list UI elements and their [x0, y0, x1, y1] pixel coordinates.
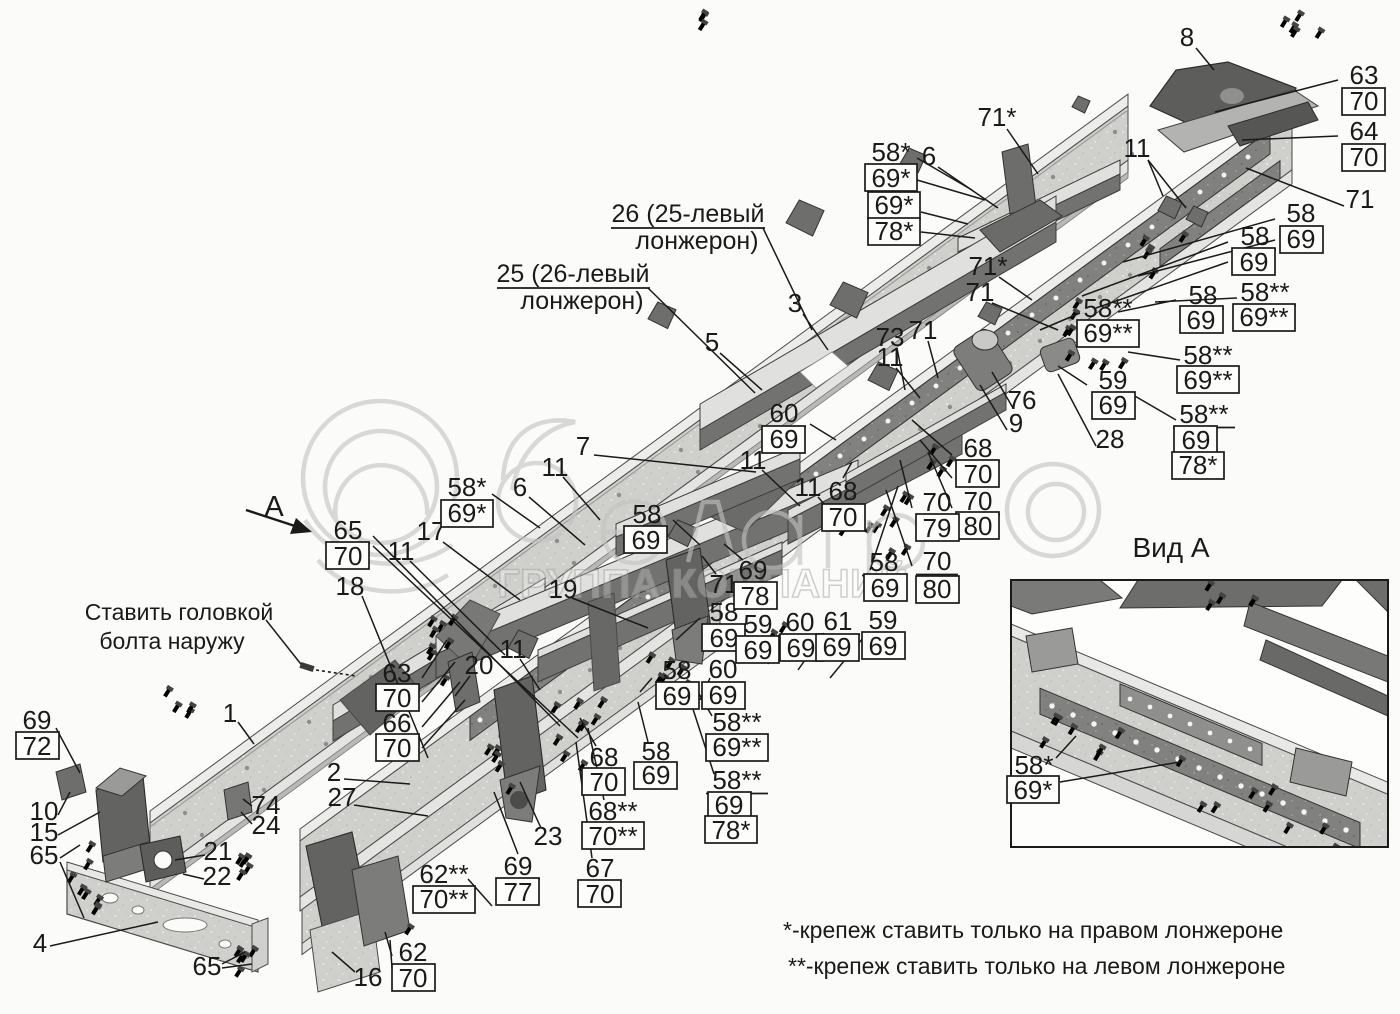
- svg-text:69: 69: [823, 632, 852, 662]
- svg-text:11: 11: [1124, 133, 1151, 163]
- svg-text:65: 65: [30, 840, 59, 870]
- svg-text:*-крепеж ставить только на пра: *-крепеж ставить только на правом лонжер…: [783, 917, 1283, 943]
- svg-text:6: 6: [513, 472, 527, 502]
- svg-text:24: 24: [252, 810, 281, 840]
- svg-text:71: 71: [1346, 184, 1375, 214]
- svg-text:69*: 69*: [871, 163, 910, 193]
- svg-text:болта наружу: болта наружу: [99, 628, 245, 654]
- svg-text:69: 69: [1287, 224, 1316, 254]
- svg-text:70**: 70**: [588, 821, 637, 851]
- svg-text:9: 9: [1009, 408, 1023, 438]
- svg-text:18: 18: [336, 571, 365, 601]
- svg-text:1: 1: [223, 698, 237, 728]
- svg-text:**-крепеж ставить только на ле: **-крепеж ставить только на левом лонжер…: [788, 953, 1285, 979]
- svg-text:69: 69: [1240, 247, 1269, 277]
- svg-text:70: 70: [383, 733, 412, 763]
- svg-text:11: 11: [795, 472, 822, 502]
- svg-text:22: 22: [203, 861, 232, 891]
- svg-text:16: 16: [354, 962, 383, 992]
- svg-text:80: 80: [923, 574, 952, 604]
- svg-text:70: 70: [964, 459, 993, 489]
- svg-text:79: 79: [923, 513, 952, 543]
- svg-text:69: 69: [869, 631, 898, 661]
- svg-text:70: 70: [829, 502, 858, 532]
- svg-text:69: 69: [1099, 390, 1128, 420]
- svg-text:78*: 78*: [874, 216, 913, 246]
- svg-text:78*: 78*: [1178, 450, 1217, 480]
- svg-text:69: 69: [871, 573, 900, 603]
- svg-text:69*: 69*: [447, 498, 486, 528]
- svg-text:70: 70: [586, 879, 615, 909]
- svg-text:69: 69: [710, 623, 739, 653]
- svg-text:3: 3: [788, 288, 802, 318]
- svg-text:27: 27: [328, 782, 357, 812]
- svg-text:69**: 69**: [1083, 318, 1132, 348]
- svg-text:11: 11: [542, 452, 569, 482]
- svg-text:69: 69: [632, 525, 661, 555]
- svg-text:65: 65: [193, 951, 222, 981]
- svg-text:Ставить головкой: Ставить головкой: [85, 599, 273, 625]
- svg-text:7: 7: [576, 431, 590, 461]
- svg-text:69*: 69*: [1013, 775, 1052, 805]
- svg-text:11: 11: [877, 342, 904, 372]
- svg-text:11: 11: [500, 634, 527, 664]
- svg-text:69: 69: [663, 681, 692, 711]
- svg-text:лонжерон): лонжерон): [520, 287, 643, 315]
- svg-text:25 (26-левый: 25 (26-левый: [497, 260, 650, 288]
- svg-text:78*: 78*: [711, 815, 750, 845]
- svg-text:69: 69: [787, 633, 816, 663]
- svg-text:11: 11: [740, 445, 767, 475]
- svg-text:70: 70: [1350, 86, 1379, 116]
- svg-text:70: 70: [923, 546, 952, 576]
- svg-text:11: 11: [388, 536, 415, 566]
- svg-text:20: 20: [465, 650, 494, 680]
- svg-text:26 (25-левый: 26 (25-левый: [612, 200, 765, 228]
- svg-text:70: 70: [590, 767, 619, 797]
- svg-text:70: 70: [334, 541, 363, 571]
- svg-text:69**: 69**: [1239, 302, 1288, 332]
- svg-text:28: 28: [1096, 424, 1125, 454]
- svg-text:69**: 69**: [712, 732, 761, 762]
- svg-text:71: 71: [966, 277, 995, 307]
- svg-text:77: 77: [504, 877, 533, 907]
- svg-text:80: 80: [964, 511, 993, 541]
- svg-text:Вид А: Вид А: [1132, 532, 1209, 563]
- svg-text:8: 8: [1180, 22, 1194, 52]
- svg-text:70: 70: [1350, 142, 1379, 172]
- svg-text:70**: 70**: [419, 884, 468, 914]
- svg-text:4: 4: [33, 928, 47, 958]
- svg-text:19: 19: [549, 574, 578, 604]
- svg-text:69: 69: [709, 680, 738, 710]
- svg-text:23: 23: [534, 821, 563, 851]
- svg-text:69**: 69**: [1183, 365, 1232, 395]
- svg-text:71: 71: [909, 315, 938, 345]
- svg-text:69: 69: [744, 635, 773, 665]
- svg-text:69: 69: [770, 424, 799, 454]
- svg-text:5: 5: [705, 327, 719, 357]
- svg-text:71*: 71*: [977, 102, 1016, 132]
- svg-text:70: 70: [399, 963, 428, 993]
- svg-text:69: 69: [1187, 305, 1216, 335]
- svg-text:69: 69: [642, 760, 671, 790]
- svg-text:6: 6: [922, 141, 936, 171]
- svg-text:лонжерон): лонжерон): [635, 227, 758, 255]
- svg-text:78: 78: [741, 581, 770, 611]
- svg-text:72: 72: [23, 731, 52, 761]
